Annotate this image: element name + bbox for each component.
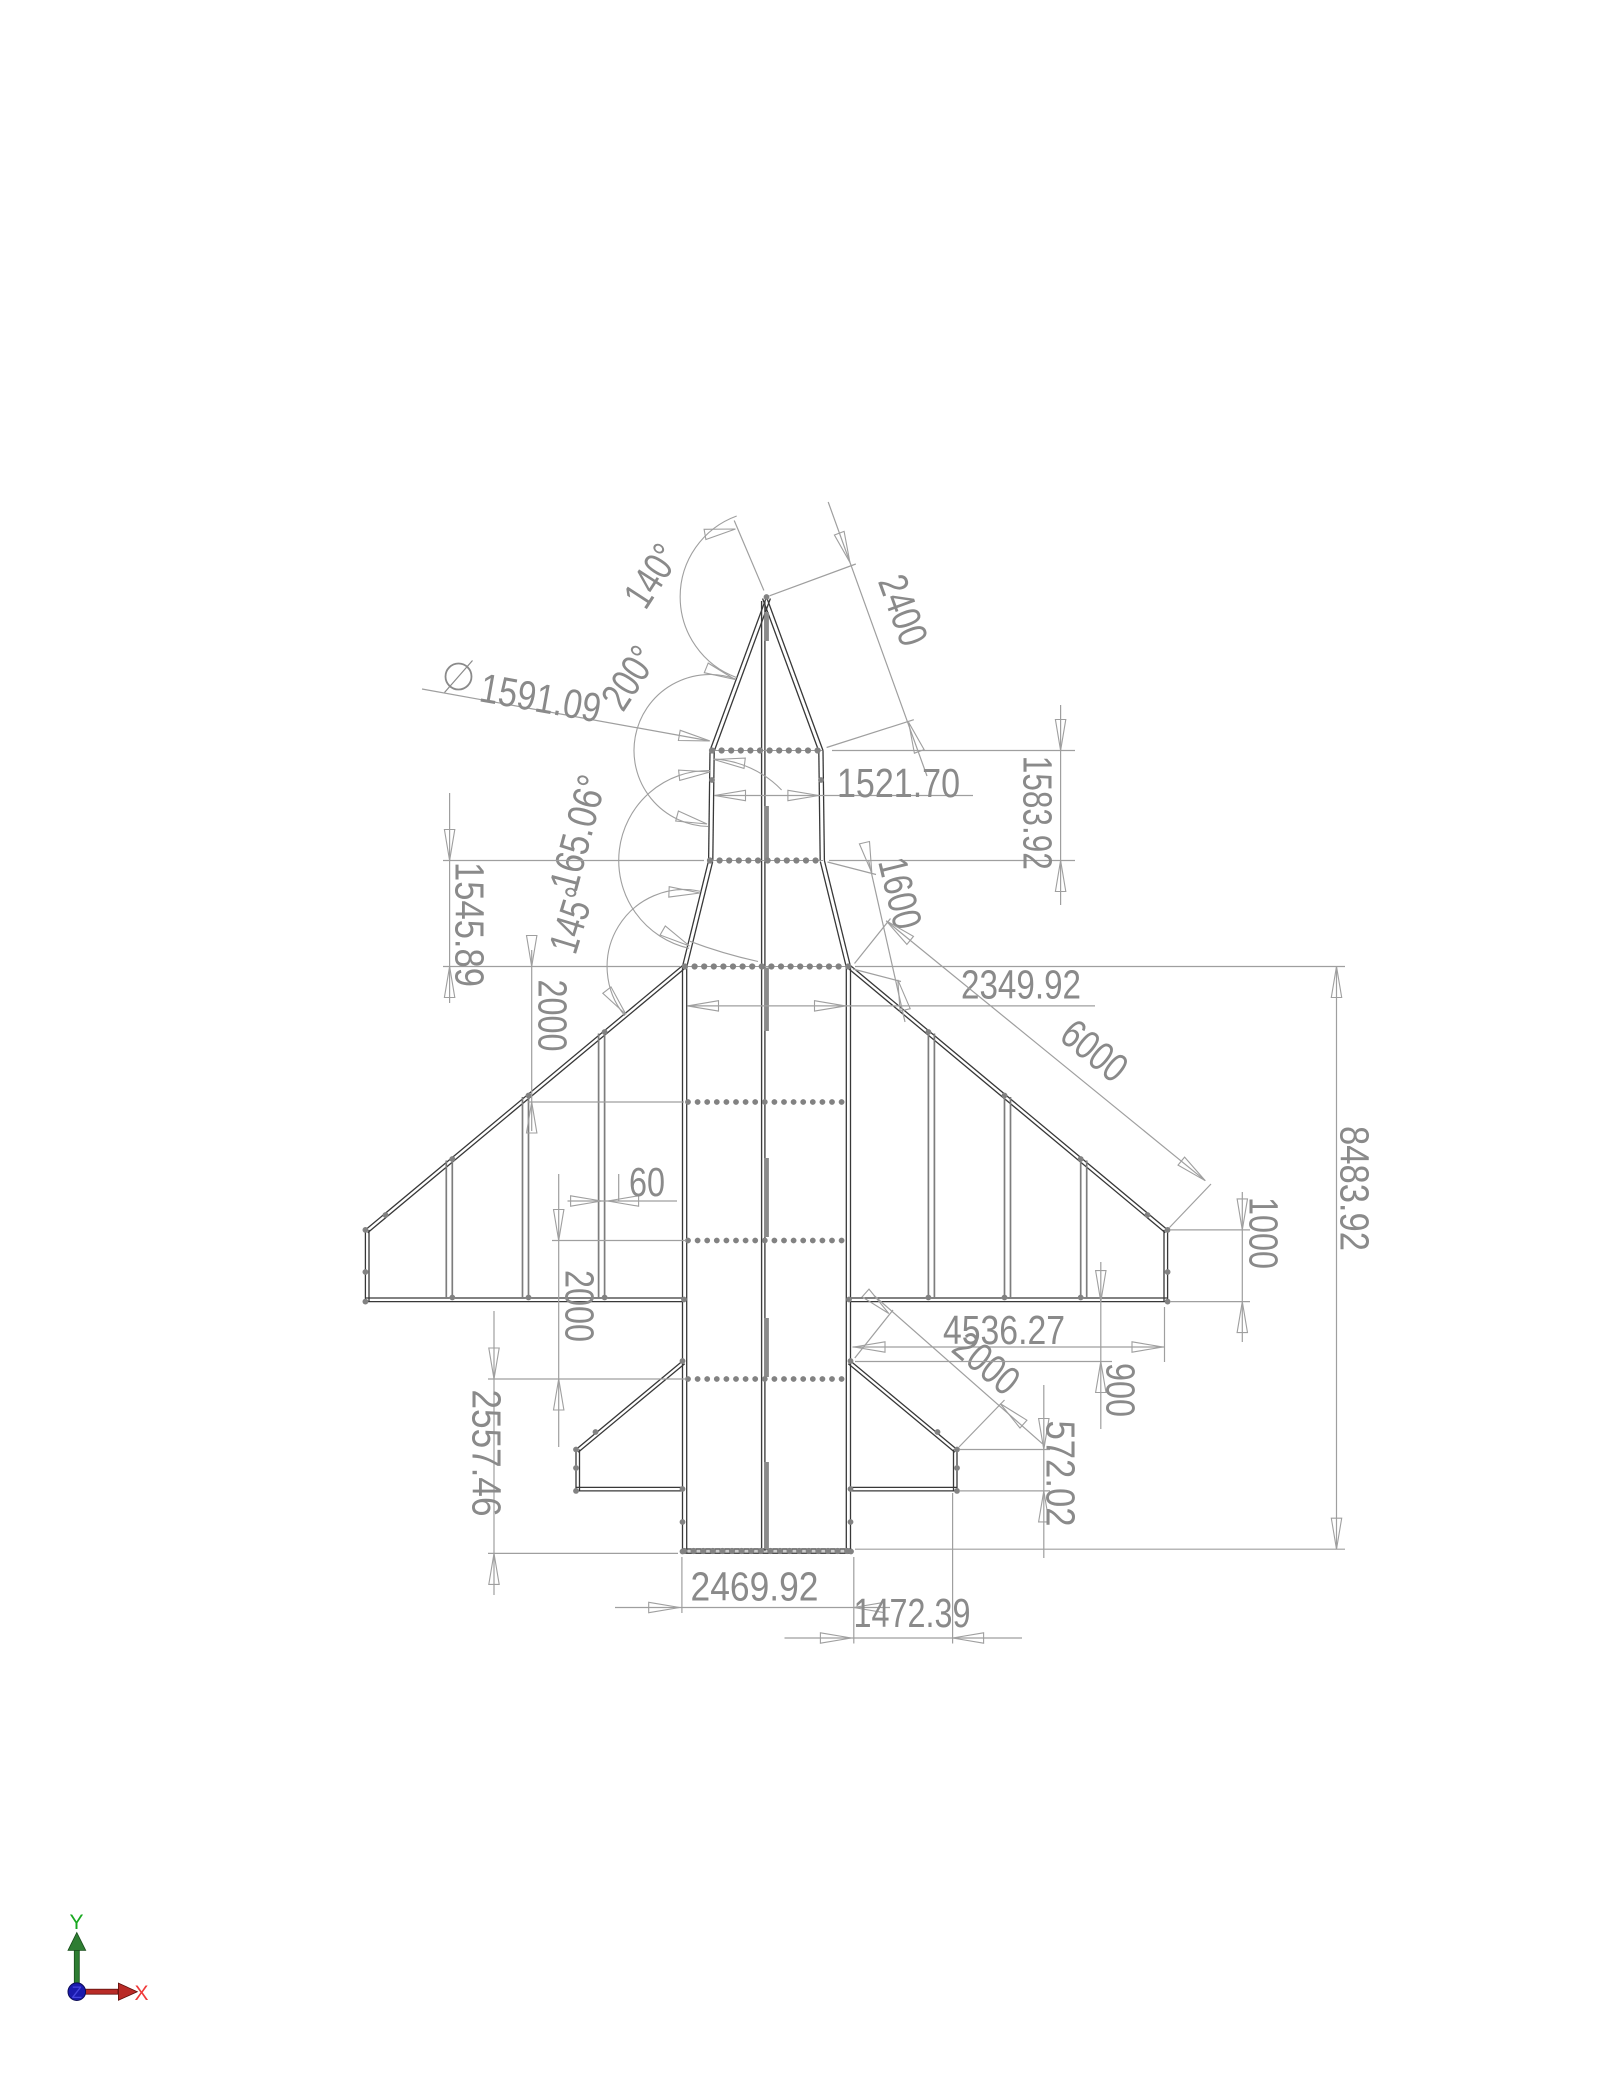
- svg-text:8483.92: 8483.92: [1332, 1126, 1378, 1251]
- svg-text:60: 60: [629, 1159, 665, 1205]
- svg-text:900: 900: [1098, 1363, 1144, 1417]
- svg-text:1472.39: 1472.39: [854, 1590, 971, 1636]
- svg-text:2000: 2000: [557, 1270, 603, 1342]
- svg-text:1583.92: 1583.92: [1015, 756, 1061, 870]
- svg-text:572.02: 572.02: [1038, 1421, 1084, 1527]
- svg-text:2469.92: 2469.92: [691, 1564, 819, 1610]
- svg-text:1545.89: 1545.89: [446, 862, 492, 987]
- svg-text:2000: 2000: [530, 980, 576, 1052]
- svg-text:1521.70: 1521.70: [837, 760, 960, 806]
- svg-text:Y: Y: [69, 1911, 83, 1934]
- svg-text:2557.46: 2557.46: [463, 1390, 509, 1517]
- svg-text:Z: Z: [72, 1983, 82, 2002]
- svg-text:X: X: [134, 1982, 148, 2005]
- svg-text:2349.92: 2349.92: [961, 962, 1081, 1008]
- svg-text:1000: 1000: [1241, 1197, 1287, 1269]
